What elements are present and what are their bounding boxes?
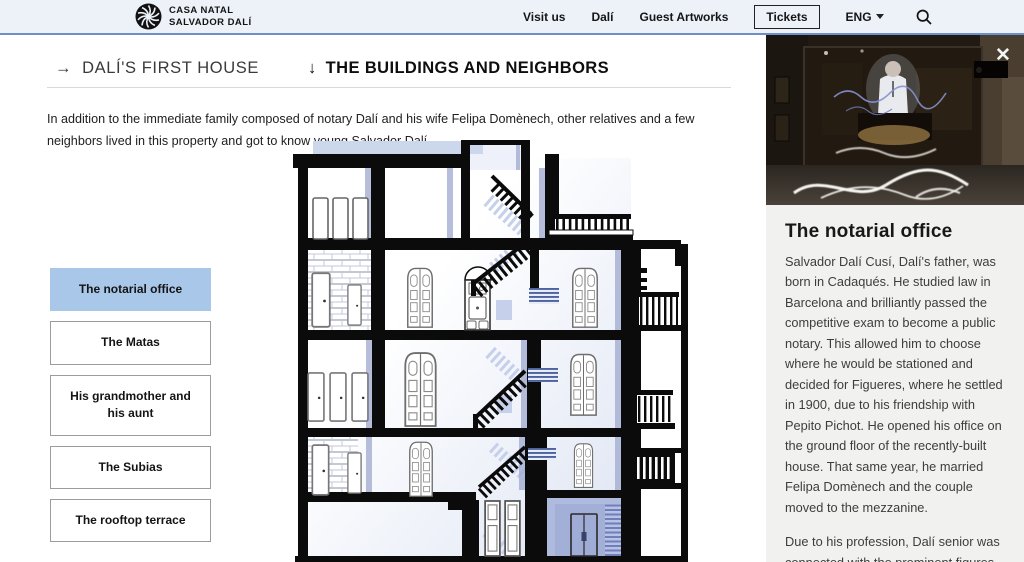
logo-line2: SALVADOR DALÍ	[169, 17, 252, 28]
page-title: ↓ THE BUILDINGS AND NEIGHBORS	[308, 59, 609, 78]
sidebar-item-notarial-office[interactable]: The notarial office	[50, 268, 211, 311]
section-link-label: DALÍ'S FIRST HOUSE	[82, 59, 259, 78]
nav-visit-us[interactable]: Visit us	[523, 10, 565, 24]
chevron-down-icon	[876, 14, 884, 19]
tickets-button[interactable]: Tickets	[754, 5, 819, 29]
section-link-dalis-first-house[interactable]: → DALÍ'S FIRST HOUSE	[55, 59, 259, 78]
down-arrow-icon: ↓	[308, 59, 317, 78]
dali-swirl-logo-icon	[135, 3, 162, 30]
sidebar-item-rooftop-terrace[interactable]: The rooftop terrace	[50, 499, 211, 542]
close-icon[interactable]: ✕	[990, 43, 1016, 69]
location-button-list: The notarial office The Matas His grandm…	[50, 268, 211, 542]
nav-dali[interactable]: Dalí	[591, 10, 613, 24]
search-button[interactable]	[916, 9, 932, 25]
site-logo[interactable]: CASA NATAL SALVADOR DALÍ	[135, 3, 252, 30]
notarial-office-photo: ✕	[766, 35, 1024, 205]
sidebar-item-the-matas[interactable]: The Matas	[50, 321, 211, 364]
panel-paragraph-2: Due to his profession, Dalí senior was c…	[785, 532, 1006, 562]
main-nav: Visit us Dalí Guest Artworks Tickets ENG	[523, 0, 932, 33]
logo-line1: CASA NATAL	[169, 5, 252, 16]
notarial-office-projection-scene	[766, 35, 1024, 205]
logo-wordmark: CASA NATAL SALVADOR DALÍ	[169, 5, 252, 28]
language-selector[interactable]: ENG	[846, 10, 884, 24]
panel-paragraph-1: Salvador Dalí Cusí, Dalí's father, was b…	[785, 252, 1006, 518]
sidebar-item-grandmother-aunt[interactable]: His grandmother and his aunt	[50, 375, 211, 436]
search-icon	[916, 9, 932, 25]
top-navigation-bar: CASA NATAL SALVADOR DALÍ Visit us Dalí G…	[0, 0, 1024, 35]
right-arrow-icon: →	[55, 59, 72, 78]
page-title-label: THE BUILDINGS AND NEIGHBORS	[326, 59, 609, 78]
panel-body: The notarial office Salvador Dalí Cusí, …	[766, 205, 1024, 562]
page: CASA NATAL SALVADOR DALÍ Visit us Dalí G…	[0, 0, 1024, 562]
nav-guest-artworks[interactable]: Guest Artworks	[639, 10, 728, 24]
sidebar-item-the-subias[interactable]: The Subias	[50, 446, 211, 489]
detail-panel: ✕ The notarial office Salvador Dalí Cusí…	[766, 35, 1024, 562]
language-label: ENG	[846, 10, 872, 24]
panel-title: The notarial office	[785, 221, 1006, 243]
building-cross-section-illustration[interactable]	[283, 140, 688, 562]
heading-divider	[47, 87, 731, 88]
